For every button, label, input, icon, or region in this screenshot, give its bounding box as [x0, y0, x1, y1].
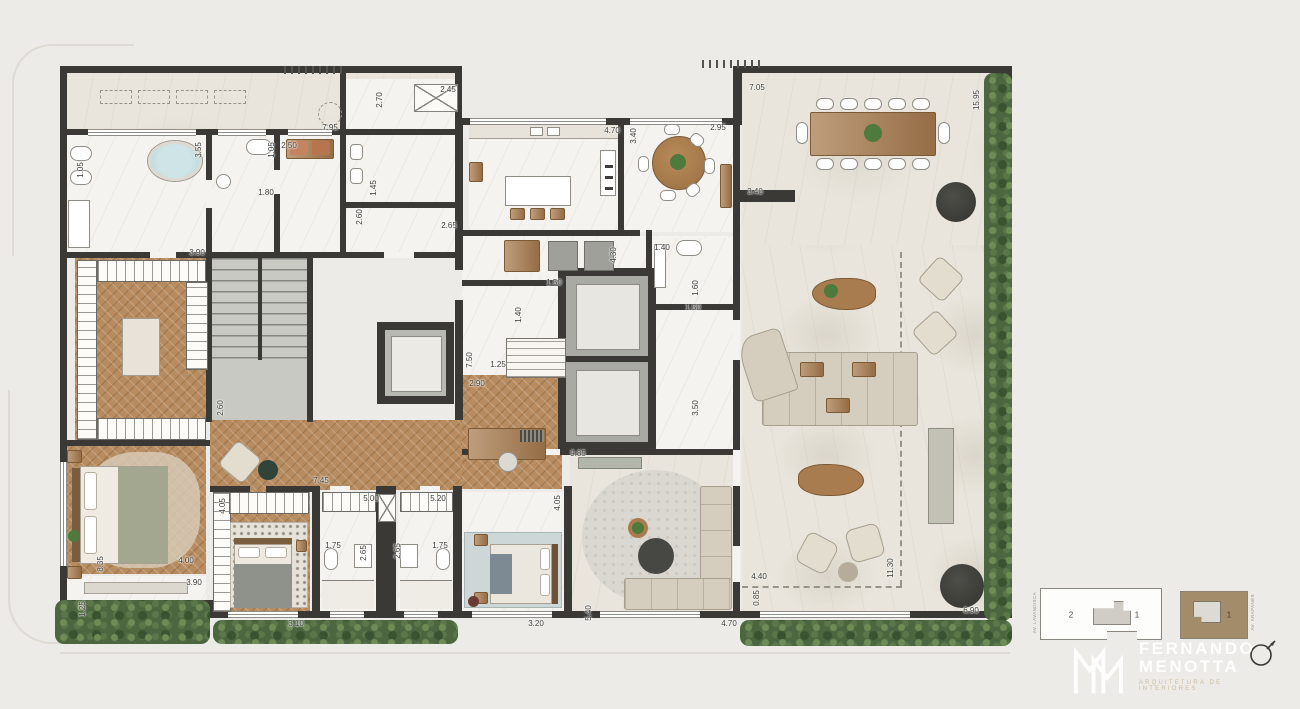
- keyplan-left: 2 1: [1040, 588, 1162, 640]
- basin: [350, 168, 363, 184]
- kitchen-cabinet: [469, 162, 483, 182]
- dimension-label: 7.50: [466, 352, 474, 368]
- chair: [912, 158, 930, 170]
- table-plant: [670, 154, 686, 170]
- wall-mbed-north: [60, 440, 210, 446]
- dimension-label: 7.95: [322, 124, 338, 132]
- chair: [816, 98, 834, 110]
- wardrobe: [97, 418, 206, 440]
- dimension-label: 4.00: [178, 557, 194, 565]
- wall-dressing-bath2: [340, 73, 346, 258]
- vanity: [68, 200, 90, 248]
- nightstand: [67, 450, 82, 463]
- dimension-label: 1.50: [546, 279, 562, 287]
- bed-headboard: [72, 468, 80, 562]
- wall-bc-low1: [733, 486, 740, 546]
- stairs-divider: [258, 258, 262, 360]
- kitchen-sink: [530, 127, 543, 136]
- wardrobe: [97, 260, 206, 282]
- side-table: [258, 460, 278, 480]
- wall-north-a: [60, 66, 462, 73]
- dimension-label: 1.75: [432, 542, 448, 550]
- wall-bc-stub: [733, 190, 795, 202]
- wall-laundry-south: [462, 280, 558, 286]
- brand-logo: FERNANDO MENOTTA ARQUITETURA DE INTERIOR…: [1072, 640, 1282, 702]
- keyplan-left-notch: [1107, 631, 1137, 640]
- dimension-label: 4.05: [219, 498, 227, 514]
- sofa-tray: [826, 398, 850, 413]
- plant: [632, 522, 644, 534]
- dimension-label: 6.90: [963, 607, 979, 615]
- island-stool: [530, 208, 545, 220]
- street-label-right: AV. ARAPANÉS: [1250, 594, 1255, 630]
- dimension-label: 11.30: [887, 558, 895, 577]
- table-plant: [864, 124, 882, 142]
- dimension-label: 1.40: [515, 307, 523, 323]
- bed-blanket: [234, 564, 292, 608]
- wall-ab-lower: [455, 300, 463, 420]
- planter-box: [214, 90, 246, 104]
- dimension-label: 1.80: [258, 189, 274, 197]
- chair: [664, 124, 680, 135]
- dimension-label: 3.10: [288, 620, 304, 628]
- coffee-table-organic: [812, 278, 876, 310]
- living-tree: [940, 564, 984, 608]
- window-bath2: [330, 611, 364, 618]
- family-sideboard: [578, 457, 642, 469]
- nightstand: [474, 534, 488, 546]
- brand-name-line1: FERNANDO: [1139, 640, 1282, 658]
- chair: [816, 158, 834, 170]
- dimension-label: 2.95: [710, 124, 726, 132]
- wall-bc-low2: [733, 582, 740, 618]
- wall-kitchen-breakfast: [618, 125, 624, 232]
- office-chair: [498, 452, 518, 472]
- washer: [548, 241, 578, 271]
- brand-text: FERNANDO MENOTTA ARQUITETURA DE INTERIOR…: [1139, 640, 1282, 692]
- bed-blanket: [118, 467, 168, 563]
- brand-tagline: ARQUITETURA DE INTERIORES: [1139, 680, 1282, 692]
- wardrobe: [77, 260, 97, 440]
- island-stool: [510, 208, 525, 220]
- window-bedroom3: [472, 611, 552, 618]
- dimension-label: 3.90: [186, 579, 202, 587]
- dimension-label: 2.90: [469, 380, 485, 388]
- dimension-label: 1.05: [77, 162, 85, 178]
- pillow: [540, 548, 550, 570]
- bed-headboard: [552, 544, 558, 604]
- wall-bath2-south: [346, 202, 460, 208]
- dimension-label: 2.45: [440, 86, 456, 94]
- pantry-shelves: [506, 338, 566, 378]
- dimension-label: 5.40: [585, 605, 593, 621]
- nightstand: [67, 566, 82, 579]
- brand-name-line2: MENOTTA: [1139, 658, 1282, 676]
- dimension-label: 5.00: [363, 495, 379, 503]
- dimension-label: 2.65: [441, 222, 457, 230]
- window-wc: [218, 129, 266, 136]
- dimension-label: 3.90: [189, 249, 205, 257]
- dimension-label: 1.25: [79, 601, 87, 617]
- chair: [888, 158, 906, 170]
- window-family: [600, 611, 700, 618]
- shower: [400, 580, 452, 609]
- chair: [796, 122, 808, 144]
- plant-pot: [468, 596, 479, 607]
- window-master-bedroom: [60, 462, 67, 566]
- window-bath3: [404, 611, 438, 618]
- wardrobe: [229, 492, 309, 514]
- door-mbath: [206, 180, 212, 208]
- dimension-label: 4.30: [610, 247, 618, 263]
- keyplan-right: 1: [1180, 591, 1248, 639]
- terrace-line-bottom: [742, 586, 902, 588]
- dimension-label: 7.05: [749, 84, 765, 92]
- bed-throw: [490, 554, 512, 594]
- hedge-south-right: [740, 620, 1012, 646]
- shower: [322, 580, 374, 609]
- kitchen-sink: [547, 127, 560, 136]
- dimension-label: 4.70: [604, 127, 620, 135]
- kitchen-counter: [469, 125, 618, 139]
- shaft-box: [378, 494, 396, 522]
- dimension-label: 0.85: [753, 590, 761, 606]
- door-hall-living-1: [733, 320, 740, 360]
- pillow: [238, 547, 260, 558]
- window-kitchen: [470, 118, 606, 125]
- dimension-label: 3.55: [195, 142, 203, 158]
- pillow: [540, 574, 550, 596]
- planter-box: [138, 90, 170, 104]
- toilet: [70, 146, 92, 161]
- terrace-tree: [936, 182, 976, 222]
- window-mbath: [88, 129, 196, 136]
- wall-bath3-bed3: [453, 486, 462, 611]
- wall-bed3-family: [564, 486, 572, 611]
- toilet: [324, 548, 338, 570]
- wall-kitchen-south: [462, 230, 640, 236]
- plant: [68, 530, 80, 542]
- chair: [704, 158, 715, 174]
- pillow: [265, 547, 287, 558]
- hedge-east: [984, 73, 1012, 621]
- dimension-label: 1.25: [490, 361, 506, 369]
- chair: [888, 98, 906, 110]
- kitchen-island: [505, 176, 571, 206]
- chair: [912, 98, 930, 110]
- closet-island: [122, 318, 160, 376]
- chair: [660, 190, 676, 201]
- wall-bc-upper: [733, 66, 740, 196]
- dimension-label: 9.85: [570, 450, 586, 458]
- terrace-bench: [84, 582, 188, 594]
- wardrobe: [186, 282, 208, 370]
- window-bedroom2: [228, 611, 298, 618]
- door-wc: [274, 170, 280, 194]
- coffee-table: [638, 538, 674, 574]
- console-bench: [928, 428, 954, 524]
- elevator-1-cab: [576, 284, 640, 350]
- pillow: [84, 472, 97, 510]
- coffee-table-organic: [798, 464, 864, 496]
- door-hall-living-2: [733, 450, 740, 486]
- dimension-label: 8.35: [97, 556, 105, 572]
- keyplan-unit-1-label: 1: [1135, 611, 1139, 620]
- chair: [840, 98, 858, 110]
- stairs-landing: [212, 363, 307, 420]
- door-closet: [150, 252, 176, 258]
- vent-grille-2: [702, 60, 762, 68]
- brand-monogram-icon: [1072, 640, 1129, 698]
- wall-bed2-bath2: [312, 486, 320, 611]
- chair: [864, 98, 882, 110]
- vent-grille-1: [284, 66, 342, 74]
- dimension-label: 5.20: [430, 495, 446, 503]
- toilet: [436, 548, 450, 570]
- side-table: [838, 562, 858, 582]
- chair: [840, 158, 858, 170]
- dimension-label: 3.40: [630, 128, 638, 144]
- chair: [638, 156, 649, 172]
- chair: [864, 158, 882, 170]
- wall-north-c: [735, 66, 1012, 73]
- wall-ab-upper: [455, 118, 463, 270]
- planter-box: [100, 90, 132, 104]
- keyplan-left-core: [1093, 601, 1131, 625]
- laundry-counter: [504, 240, 540, 272]
- sofa-tray: [800, 362, 824, 377]
- dimension-label: 1.45: [370, 180, 378, 196]
- door-suite: [384, 252, 414, 258]
- dimension-label: 4.40: [751, 573, 767, 581]
- street-label-left: AV. LAVANDISCA: [1032, 592, 1037, 633]
- window-living-south: [760, 611, 910, 618]
- dimension-label: 4.70: [721, 620, 737, 628]
- sofa-tray: [852, 362, 876, 377]
- dimension-label: 2.50: [281, 142, 297, 150]
- hedge-south-center: [213, 620, 458, 644]
- plant: [824, 284, 838, 298]
- nightstand: [296, 540, 307, 552]
- dimension-label: 1.60: [692, 280, 700, 296]
- pillow: [84, 516, 97, 554]
- wall-bc-mid2: [733, 360, 740, 450]
- dimension-label: 4.05: [554, 495, 562, 511]
- dimension-label: 2.60: [356, 209, 364, 225]
- family-sofa-bottom: [624, 578, 732, 610]
- elevator-2-cab: [576, 370, 640, 436]
- vanity: [400, 544, 418, 568]
- chair: [938, 122, 950, 144]
- sidewalk-curb-bottom: [60, 652, 1010, 654]
- island-stool: [550, 208, 565, 220]
- dimension-label: 15.95: [973, 90, 981, 110]
- dimension-label: 1.40: [654, 244, 670, 252]
- keyplan-right-unit-label: 1: [1227, 611, 1231, 620]
- sink: [216, 174, 231, 189]
- dimension-label: 2.60: [217, 400, 225, 416]
- door-family-living: [733, 546, 740, 582]
- keyplan-right-core: [1193, 601, 1221, 623]
- office-shelf: [520, 430, 544, 442]
- dimension-label: 7.45: [313, 477, 329, 485]
- dimension-label: 2.70: [376, 92, 384, 108]
- keyplan-unit-2-label: 2: [1069, 611, 1073, 620]
- floor-plan-canvas: 1.057.952.702.453.552.501.051.801.452.60…: [0, 0, 1300, 709]
- planter-box: [176, 90, 208, 104]
- stove: [600, 150, 616, 196]
- dimension-label: 3.50: [692, 400, 700, 416]
- wall-stairs-east: [307, 258, 313, 422]
- service-elevator-inner: [391, 336, 442, 392]
- dimension-label: 1.75: [325, 542, 341, 550]
- toilet: [676, 240, 702, 256]
- dimension-label: 2.65: [394, 543, 402, 559]
- dimension-label: 1.05: [268, 142, 276, 158]
- dimension-label: 1.50: [685, 304, 701, 312]
- wall-bc-mid1: [733, 202, 740, 320]
- breakfast-sideboard: [720, 164, 732, 208]
- dimension-label: 3.40: [747, 188, 763, 196]
- dimension-label: 3.20: [528, 620, 544, 628]
- basin: [350, 144, 363, 160]
- bench-cushion: [312, 141, 330, 155]
- dimension-label: 2.65: [360, 545, 368, 561]
